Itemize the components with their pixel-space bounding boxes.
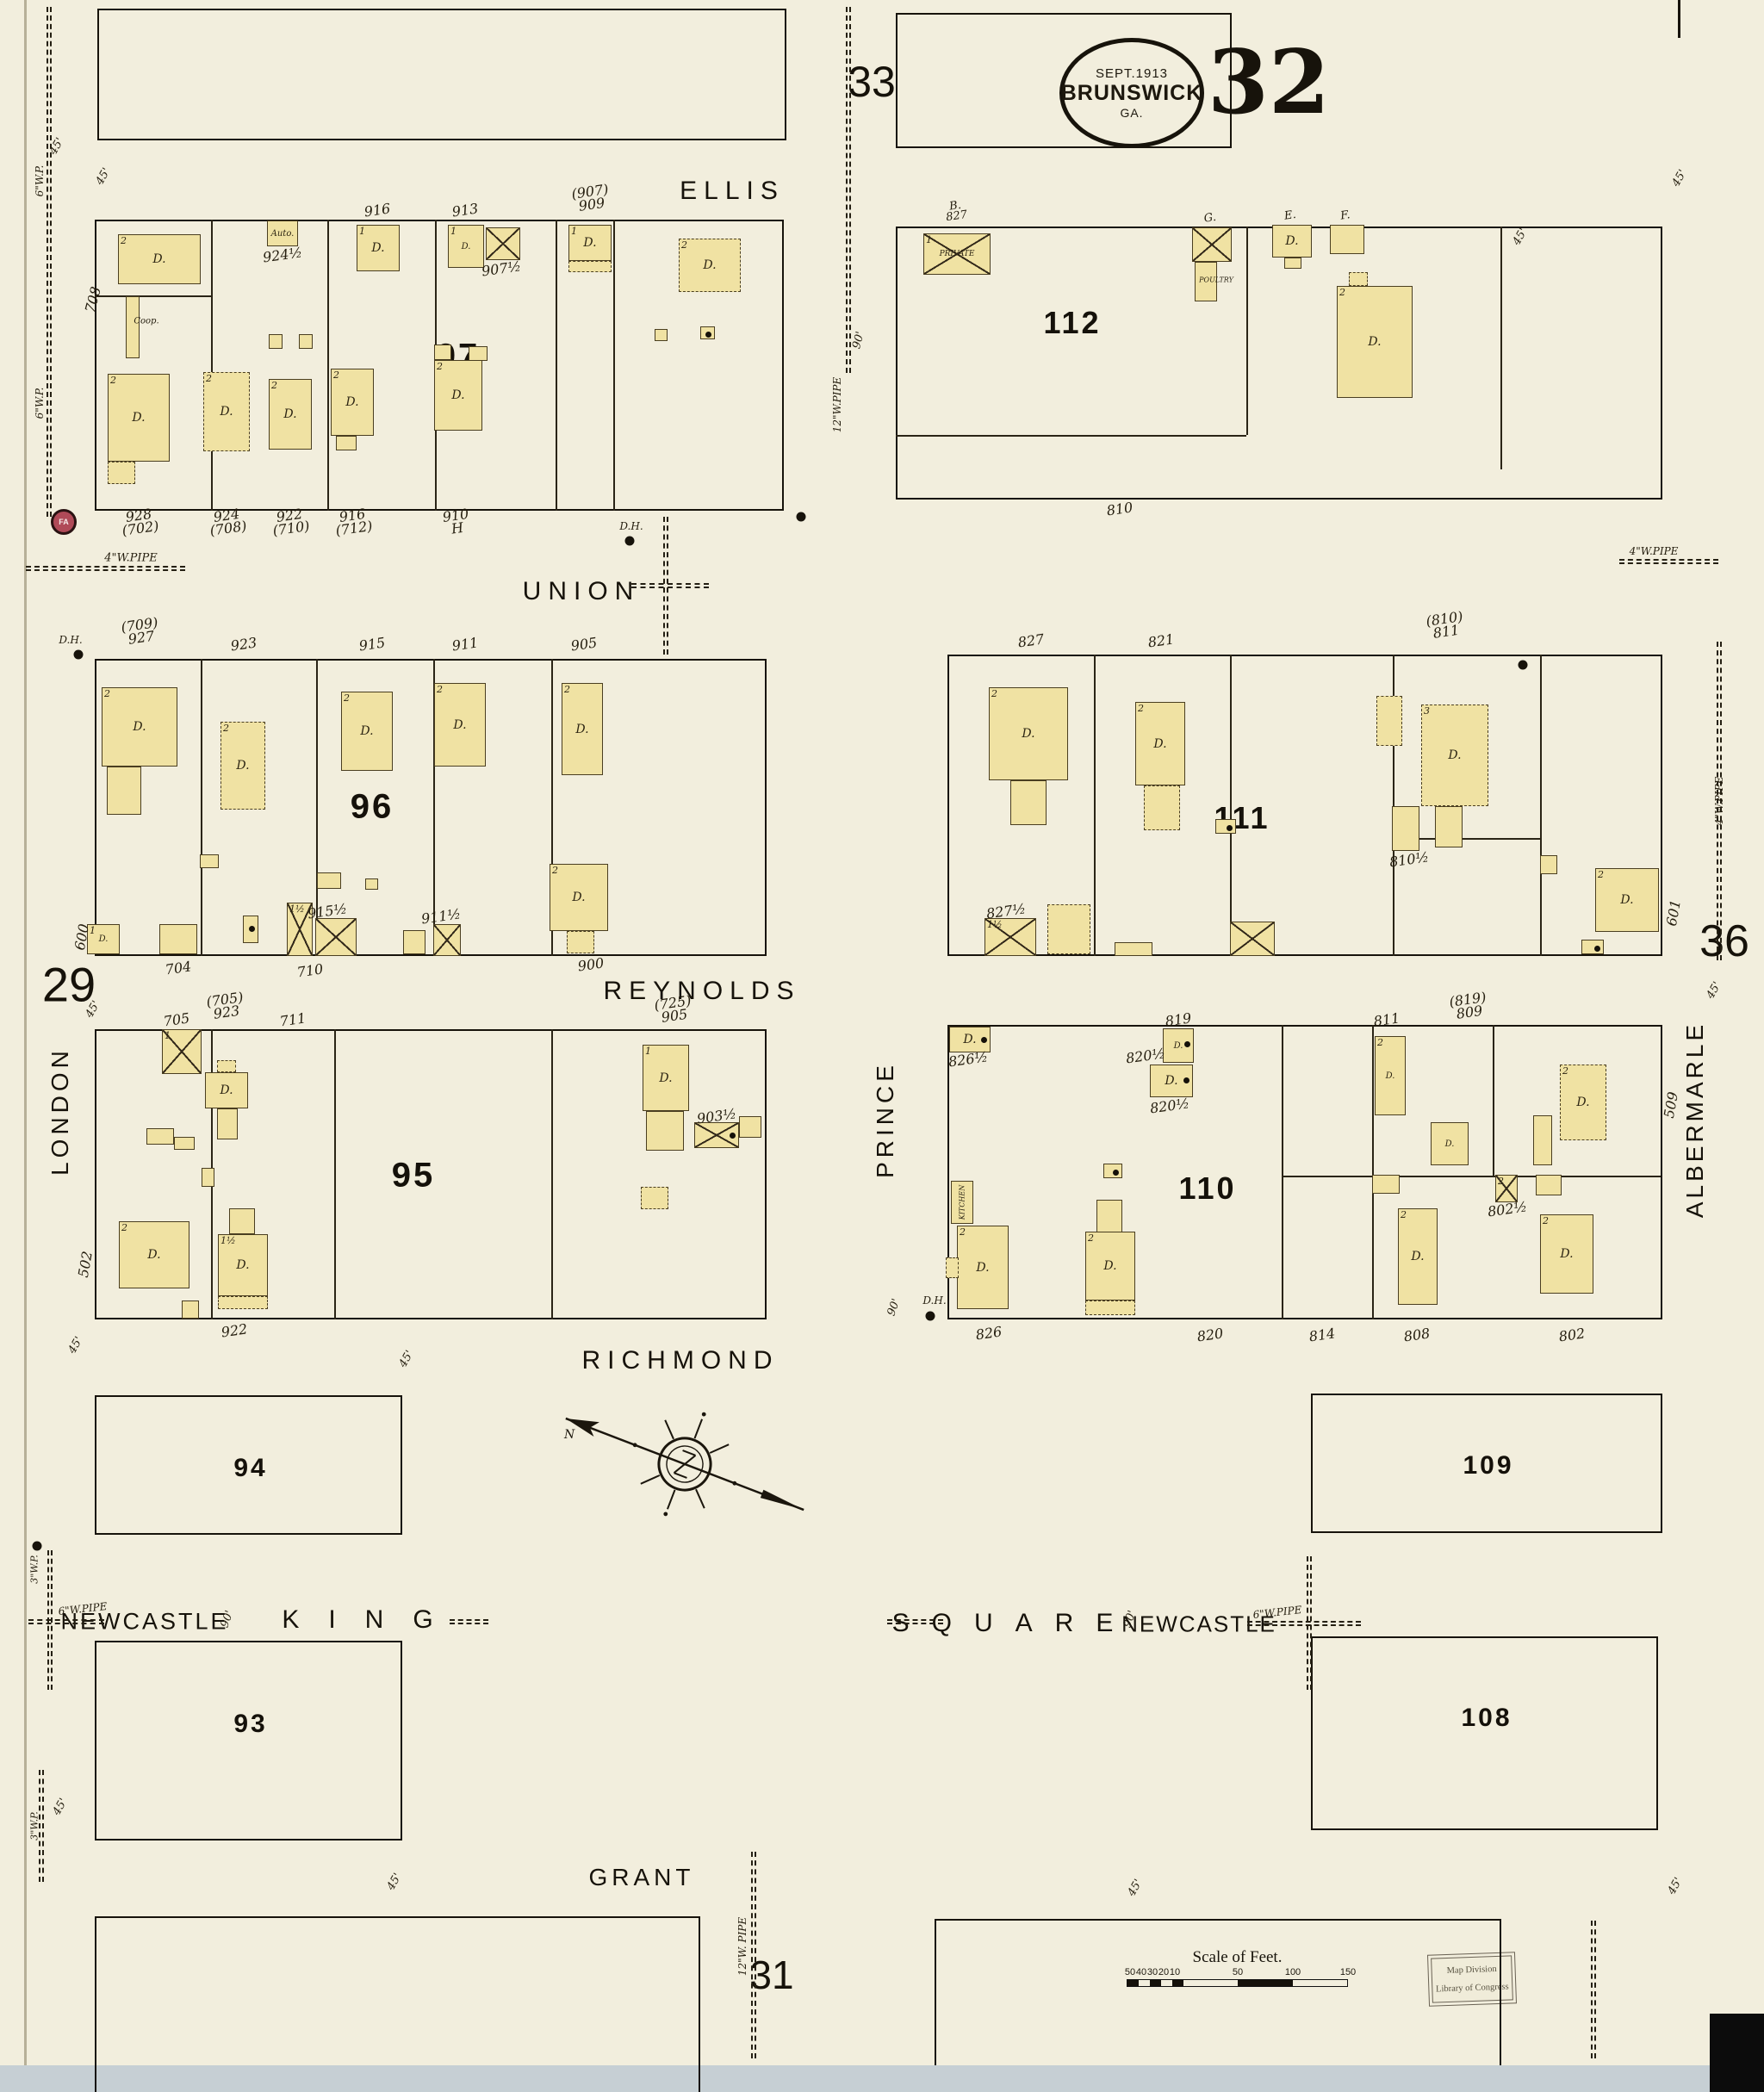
- building-use-label: D.: [120, 1222, 189, 1288]
- block-number: 93: [233, 1710, 267, 1739]
- city-block: [97, 9, 786, 140]
- street-label-london: LONDON: [47, 1046, 74, 1176]
- street-label-grant: GRANT: [589, 1864, 695, 1891]
- building: [217, 1108, 238, 1139]
- building: PRIVATE1: [923, 233, 991, 275]
- building: [641, 1187, 668, 1209]
- lot-line: [327, 220, 329, 511]
- building-use-label: D.: [958, 1226, 1008, 1308]
- building: [1372, 1175, 1400, 1194]
- water-pipe-line: [751, 1852, 756, 2058]
- lot-line: [556, 220, 557, 511]
- building-stories: 3: [1424, 705, 1430, 717]
- building: [1096, 1200, 1122, 1234]
- house-number: 705: [163, 1011, 190, 1027]
- building: D.2: [1085, 1232, 1135, 1301]
- building: D.1: [568, 225, 612, 261]
- building-stories: 1: [165, 1030, 171, 1041]
- map-annotation: 3"W.P.: [29, 1555, 40, 1584]
- building: [1010, 780, 1047, 825]
- map-annotation: 90': [885, 1297, 904, 1318]
- building: [126, 296, 140, 358]
- adjacent-sheet-number: 36: [1699, 916, 1749, 967]
- building: 2: [1495, 1175, 1518, 1202]
- block-number: 94: [233, 1454, 267, 1483]
- building-use-label: D.: [1338, 287, 1412, 397]
- building-stories: 2: [1339, 287, 1345, 298]
- building-use-label: PRIVATE: [924, 234, 990, 274]
- map-annotation: 45': [50, 1797, 70, 1818]
- house-number: (709)927: [121, 616, 161, 647]
- water-pipe-line: [1307, 1556, 1312, 1690]
- map-annotation: 4"W.PIPE: [104, 552, 158, 565]
- building: 1: [162, 1029, 202, 1074]
- house-number: 819: [1165, 1011, 1192, 1027]
- building-use-label: D.: [204, 373, 249, 450]
- house-number: 923: [230, 636, 258, 652]
- house-number: 826: [975, 1325, 1003, 1341]
- title-city: BRUNSWICK: [1061, 81, 1203, 106]
- building: D.: [1431, 1122, 1469, 1165]
- house-number: 601: [1665, 899, 1682, 928]
- building: [108, 462, 135, 484]
- lot-line: [1230, 655, 1232, 956]
- lot-line: [1246, 227, 1248, 435]
- water-pipe-line: [1247, 1621, 1361, 1626]
- building: [1047, 904, 1090, 954]
- house-number: 821: [1147, 632, 1175, 649]
- building: D.2: [118, 234, 201, 284]
- street-label-union: UNION: [523, 577, 641, 606]
- building: [229, 1208, 255, 1234]
- lot-line: [1493, 1025, 1494, 1176]
- city-block: 93: [95, 1641, 402, 1841]
- map-annotation: D.H.: [59, 634, 82, 646]
- building-use-label: D.: [1273, 226, 1311, 257]
- building-stories: 2: [1401, 1209, 1407, 1220]
- water-pipe-line: [1619, 559, 1718, 564]
- hydrant-dot: [730, 1133, 736, 1139]
- building-use-label: D.: [1376, 1037, 1405, 1114]
- building: D.2: [108, 374, 170, 462]
- building: [336, 436, 357, 450]
- building: D.2: [434, 360, 482, 431]
- frame-tick: [1678, 0, 1680, 38]
- building: D.2: [331, 369, 374, 436]
- title-state: GA.: [1120, 106, 1143, 120]
- hydrant-dot: [981, 1037, 987, 1043]
- house-number: 916: [363, 202, 391, 218]
- building: D.2: [989, 687, 1068, 780]
- building: [1103, 1164, 1122, 1178]
- house-number: E.: [1283, 210, 1296, 222]
- building: [218, 1296, 268, 1309]
- map-annotation: 12"W. PIPE: [736, 1917, 748, 1976]
- hydrant-dot: [1227, 825, 1233, 831]
- building: [182, 1301, 199, 1319]
- building-stories: 2: [681, 239, 687, 251]
- fire-alarm-marker: FA: [51, 509, 77, 535]
- building-use-label: D.: [102, 688, 177, 766]
- building: [469, 346, 488, 361]
- scan-black-corner: [1710, 2014, 1764, 2092]
- building: [1284, 258, 1301, 269]
- building: [1349, 272, 1368, 286]
- building-stories: 1: [645, 1046, 651, 1057]
- building-use-label: D.: [109, 375, 169, 461]
- building-stories: 1½: [289, 903, 305, 915]
- building: [317, 872, 341, 889]
- building: [299, 334, 313, 349]
- house-number: 922: [220, 1322, 248, 1338]
- building-stories: 2: [344, 692, 350, 704]
- water-pipe-line: [887, 1619, 943, 1624]
- paper-left-edge: [24, 0, 27, 2092]
- building-use-label: D.: [1541, 1215, 1593, 1293]
- lot-line: [613, 220, 615, 511]
- building: D.2: [102, 687, 177, 767]
- map-annotation: 6"W.P.: [34, 165, 46, 197]
- house-number: 810: [1106, 500, 1134, 517]
- building: D.: [1272, 225, 1312, 258]
- building: D.: [1150, 1065, 1193, 1097]
- house-number: 911: [451, 636, 479, 652]
- building: [243, 916, 258, 943]
- building-stories: 2: [271, 380, 277, 391]
- house-number: G.: [1203, 213, 1217, 225]
- house-number: 808: [1403, 1326, 1431, 1343]
- house-number: (819)809: [1449, 990, 1489, 1021]
- building: [174, 1137, 195, 1150]
- building-stories: 2: [1562, 1065, 1568, 1077]
- map-annotation: 45': [396, 1349, 416, 1370]
- building-stories: 2: [564, 684, 570, 695]
- building: 1½: [984, 918, 1036, 956]
- house-number: 915: [358, 636, 386, 652]
- building: [646, 1111, 684, 1151]
- map-annotation: D.H.: [619, 520, 643, 532]
- water-pipe-line: [1717, 642, 1722, 960]
- house-number: B.827: [944, 200, 968, 224]
- map-annotation: 45': [1704, 980, 1724, 1002]
- building: D.2: [1540, 1214, 1593, 1294]
- map-annotation: D.H.: [922, 1294, 946, 1307]
- block-number: 108: [1461, 1704, 1512, 1733]
- compass-rose: N: [547, 1382, 823, 1546]
- house-number: (810)811: [1425, 610, 1466, 641]
- building: [739, 1116, 761, 1138]
- building: [1540, 855, 1557, 874]
- double-hydrant-dot: [74, 650, 84, 660]
- building: [1230, 922, 1275, 956]
- house-number: 802: [1558, 1326, 1586, 1343]
- lot-line: [211, 220, 213, 511]
- water-pipe-line: [28, 1619, 104, 1624]
- building-stories: 2: [1543, 1215, 1549, 1226]
- building-use-label: D.: [1399, 1209, 1437, 1304]
- double-hydrant-dot: [625, 537, 635, 546]
- building: D.3: [1421, 705, 1488, 806]
- building: D.2: [562, 683, 603, 775]
- building: [1392, 806, 1419, 851]
- building-stories: 2: [121, 1222, 127, 1233]
- building-use-label: D.: [342, 692, 392, 770]
- double-hydrant-dot: [797, 512, 806, 522]
- water-pipe-line: [846, 7, 851, 373]
- map-annotation: Coop.: [134, 317, 158, 326]
- building-stories: 2: [1088, 1232, 1094, 1244]
- block-number: 112: [1043, 305, 1101, 341]
- house-number: 922(710): [270, 506, 311, 537]
- building: D.: [1163, 1028, 1194, 1063]
- lot-line: [1094, 655, 1096, 956]
- map-annotation: KITCHEN: [959, 1185, 966, 1220]
- building: [1330, 225, 1364, 254]
- lot-line: [551, 1029, 553, 1319]
- building: [146, 1128, 174, 1145]
- building-use-label: D.: [562, 684, 602, 774]
- building-stories: 2: [1598, 869, 1604, 880]
- block-number: 95: [392, 1157, 436, 1195]
- building-stories: 1½: [220, 1235, 236, 1246]
- building: D.2: [1135, 702, 1185, 785]
- building-stories: 2: [437, 684, 443, 695]
- building-use-label: D.: [221, 723, 264, 809]
- lot-line: [95, 295, 211, 297]
- building: [217, 1060, 236, 1072]
- building: [433, 924, 461, 956]
- building: [1435, 806, 1463, 847]
- house-number: 710: [296, 962, 324, 978]
- building: [315, 918, 357, 956]
- building: [946, 1257, 959, 1278]
- building-stories: 2: [552, 865, 558, 876]
- building: [1144, 785, 1180, 830]
- street-label-albermarle: ALBERMARLE: [1681, 1021, 1709, 1218]
- house-number: 924(708): [208, 506, 248, 537]
- building-use-label: D.: [1432, 1123, 1468, 1164]
- house-number: F.: [1340, 210, 1351, 222]
- hydrant-dot: [1184, 1041, 1190, 1047]
- house-number: 811: [1373, 1011, 1401, 1027]
- street-label-ellis: ELLIS: [680, 177, 785, 206]
- double-hydrant-dot: [926, 1312, 935, 1321]
- map-annotation: 6"W.P.: [34, 388, 46, 419]
- adjacent-sheet-number: 31: [749, 1952, 793, 1998]
- building: D.2: [679, 239, 741, 292]
- building: D.2: [550, 864, 608, 931]
- building: [1376, 696, 1402, 746]
- building: [434, 345, 451, 360]
- house-number: 814: [1308, 1326, 1336, 1343]
- building: [568, 261, 612, 272]
- map-annotation: 45': [1665, 1876, 1685, 1897]
- building-use-label: Auto.: [268, 221, 297, 245]
- water-pipe-line: [47, 7, 52, 517]
- building-stories: 1: [571, 226, 577, 237]
- building: [1536, 1175, 1562, 1195]
- building-stories: 2: [110, 375, 116, 386]
- house-number: 820: [1196, 1326, 1224, 1343]
- building-stories: 2: [1498, 1176, 1504, 1187]
- house-number: (907)909: [571, 183, 612, 214]
- building: D.2: [1595, 868, 1659, 932]
- building-stories: 2: [437, 361, 443, 372]
- building-stories: 1: [359, 226, 365, 237]
- building: Auto.: [267, 220, 298, 246]
- building: [700, 326, 715, 339]
- adjacent-sheet-number: 29: [42, 957, 96, 1013]
- hydrant-dot: [249, 926, 255, 932]
- water-pipe-line: [47, 1550, 53, 1690]
- street-label-prince: PRINCE: [872, 1061, 899, 1178]
- building-use-label: D.: [990, 688, 1067, 779]
- building: D.2: [1337, 286, 1413, 398]
- lot-line: [896, 435, 1246, 437]
- building-use-label: D.: [206, 1073, 247, 1108]
- double-hydrant-dot: [1519, 661, 1528, 670]
- water-pipe-line: [631, 583, 709, 588]
- block-number: 109: [1463, 1451, 1513, 1481]
- map-annotation: 4"W.PIPE: [1630, 545, 1679, 557]
- building: [1581, 940, 1604, 954]
- building-use-label: D.: [680, 239, 740, 291]
- double-hydrant-dot: [33, 1542, 42, 1551]
- lot-line: [201, 659, 202, 956]
- lot-line: [1500, 227, 1502, 469]
- map-annotation: 45': [93, 166, 113, 188]
- city-block: 112: [896, 227, 1662, 500]
- house-number: 910H: [442, 507, 471, 537]
- house-number: 704: [165, 959, 192, 976]
- water-pipe-line: [663, 517, 668, 655]
- house-number: 913: [451, 202, 479, 218]
- building: D.2: [957, 1226, 1009, 1309]
- house-number: 502: [77, 1251, 94, 1279]
- building-stories: 2: [206, 373, 212, 384]
- city-block: [935, 1919, 1501, 2065]
- lot-line: [1540, 655, 1542, 956]
- city-block: 94: [95, 1395, 402, 1535]
- sanborn-map-sheet: SEPT.1913 BRUNSWICK GA. 32 N Scale of Fe…: [0, 0, 1764, 2092]
- water-pipe-line: [39, 1770, 44, 1882]
- building-stories: 2: [223, 723, 229, 734]
- building: [567, 931, 594, 953]
- hydrant-dot: [1594, 946, 1600, 952]
- building: [202, 1168, 214, 1187]
- city-block: 109: [1311, 1394, 1662, 1533]
- building: [1115, 942, 1152, 956]
- building: [107, 767, 141, 815]
- building: [1215, 819, 1236, 834]
- building: [269, 334, 283, 349]
- title-date: SEPT.1913: [1096, 66, 1168, 81]
- building-use-label: D.: [119, 235, 200, 283]
- street-label-reynolds: REYNOLDS: [603, 977, 800, 1006]
- building-stories: 2: [1138, 703, 1144, 714]
- building-use-label: D.: [550, 865, 607, 930]
- lot-line: [1282, 1025, 1283, 1319]
- building: D.1½: [218, 1234, 268, 1296]
- building: [365, 878, 378, 890]
- building: [200, 854, 219, 868]
- building: D.1: [87, 924, 120, 954]
- building-stories: 2: [121, 235, 127, 246]
- block-number: 96: [351, 788, 394, 827]
- building: D.2: [434, 683, 486, 767]
- building: D.: [205, 1072, 248, 1108]
- hydrant-dot: [1113, 1170, 1119, 1176]
- street-label-king: KING: [282, 1605, 462, 1635]
- lot-line: [1282, 1176, 1661, 1177]
- building: [1085, 1301, 1135, 1315]
- building-stories: 2: [333, 369, 339, 381]
- map-annotation: 45': [65, 1335, 85, 1356]
- house-number: 916(712): [333, 506, 374, 537]
- building: D.2: [341, 692, 393, 771]
- building: D.2: [203, 372, 250, 451]
- city-block: 108: [1311, 1636, 1658, 1830]
- water-pipe-line: [26, 566, 185, 571]
- title-oval: SEPT.1913 BRUNSWICK GA.: [1059, 38, 1204, 148]
- building-stories: 2: [1377, 1037, 1383, 1048]
- water-pipe-line: [450, 1619, 488, 1624]
- building: D.1: [448, 225, 484, 268]
- building: D.2: [1375, 1036, 1406, 1115]
- hydrant-dot: [1183, 1077, 1189, 1083]
- building-stories: 1: [926, 234, 932, 245]
- map-annotation: 45': [384, 1872, 404, 1893]
- block-number: 110: [1178, 1170, 1236, 1207]
- building-use-label: D.: [435, 684, 485, 766]
- map-annotation: 90': [850, 330, 867, 350]
- building-stories: 1: [450, 226, 457, 237]
- lot-line: [1372, 1025, 1374, 1319]
- compass-north-letter: N: [563, 1428, 575, 1442]
- house-number: 827: [1017, 632, 1045, 649]
- map-annotation: 45': [1669, 168, 1689, 189]
- building: [1533, 1115, 1552, 1165]
- building: D.2: [220, 722, 265, 810]
- building: [159, 924, 197, 954]
- building-use-label: D.: [1422, 705, 1488, 805]
- building: D.1: [643, 1045, 689, 1111]
- map-annotation: 12"W.PIPE: [831, 377, 843, 433]
- house-number: 905: [570, 636, 598, 652]
- house-number: 928(702): [120, 506, 160, 537]
- building: [486, 227, 520, 260]
- building: [655, 329, 668, 341]
- hydrant-dot: [705, 332, 711, 338]
- lot-line: [334, 1029, 336, 1319]
- water-pipe-line: [1591, 1921, 1596, 2058]
- building: D.2: [269, 379, 312, 450]
- building: D.2: [119, 1221, 189, 1288]
- map-annotation: 45': [1125, 1878, 1145, 1899]
- building: D.1: [357, 225, 400, 271]
- building-stories: 2: [991, 688, 997, 699]
- building-stories: 2: [104, 688, 110, 699]
- building-stories: 2: [960, 1226, 966, 1238]
- building-use-label: D.: [1136, 703, 1184, 785]
- building: D.2: [1398, 1208, 1438, 1305]
- house-number: (705)923: [206, 990, 246, 1021]
- house-number: 600: [73, 923, 90, 952]
- building: [403, 930, 425, 954]
- adjacent-sheet-number: 33: [848, 57, 896, 107]
- map-annotation: POULTRY: [1199, 276, 1233, 284]
- street-label-richmond: RICHMOND: [582, 1346, 780, 1375]
